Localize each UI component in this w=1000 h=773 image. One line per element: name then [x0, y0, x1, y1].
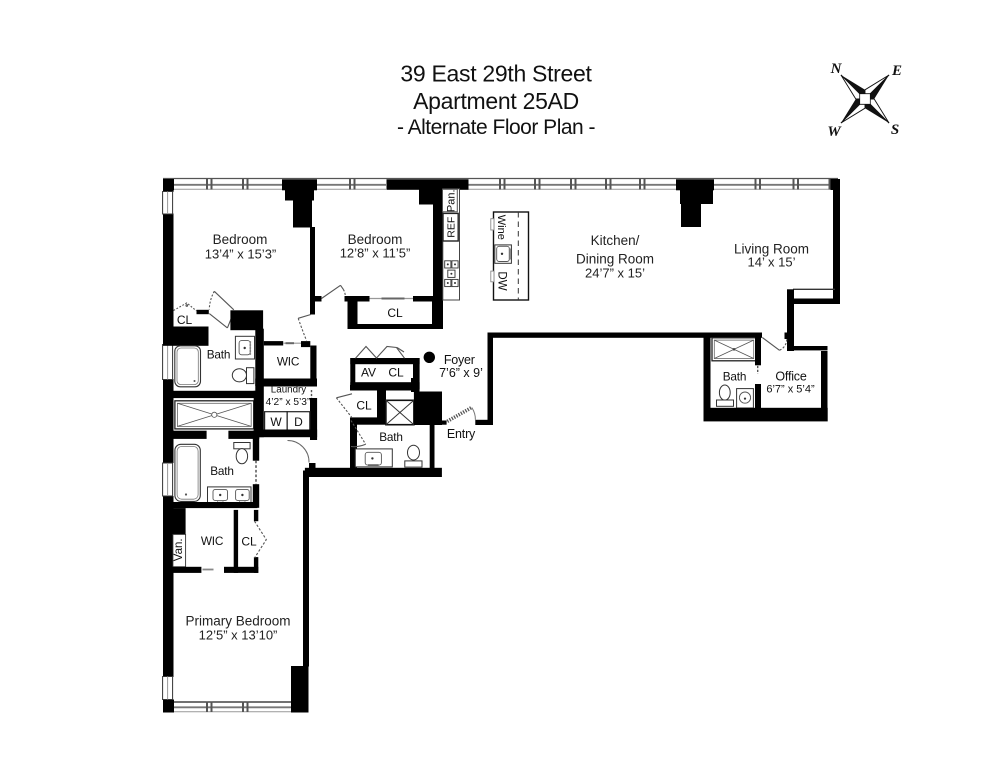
svg-text:13’4” x 15’3”: 13’4” x 15’3” [205, 247, 277, 262]
svg-text:E: E [891, 63, 902, 79]
svg-text:REF: REF [446, 217, 458, 238]
svg-text:Apartment 25AD: Apartment 25AD [413, 88, 579, 114]
svg-text:CL: CL [356, 399, 372, 413]
svg-text:6’7” x 5’4”: 6’7” x 5’4” [766, 384, 815, 396]
svg-text:Dining Room: Dining Room [576, 252, 654, 267]
svg-text:CL: CL [241, 535, 257, 549]
svg-text:12’5” x 13’10”: 12’5” x 13’10” [199, 628, 278, 643]
svg-text:Primary Bedroom: Primary Bedroom [185, 614, 290, 629]
svg-text:Bath: Bath [207, 348, 230, 362]
svg-text:W: W [827, 124, 842, 140]
svg-text:Entry: Entry [447, 427, 476, 441]
svg-text:Wine: Wine [495, 215, 507, 240]
svg-text:4’2” x 5’3”: 4’2” x 5’3” [266, 397, 311, 408]
svg-text:12’8” x 11’5”: 12’8” x 11’5” [340, 246, 411, 261]
svg-text:CL: CL [387, 306, 403, 320]
svg-text:AV: AV [361, 366, 376, 380]
svg-text:Laundry: Laundry [271, 384, 307, 395]
svg-text:- Alternate Floor Plan -: - Alternate Floor Plan - [397, 116, 596, 139]
svg-text:Kitchen/: Kitchen/ [591, 233, 640, 248]
svg-text:DW: DW [495, 271, 507, 290]
svg-text:CL: CL [177, 313, 193, 327]
svg-text:14’ x 15’: 14’ x 15’ [748, 255, 796, 270]
svg-text:Bedroom: Bedroom [213, 232, 268, 247]
svg-text:S: S [891, 122, 899, 138]
svg-text:7’6” x 9’: 7’6” x 9’ [439, 366, 483, 380]
svg-text:CL: CL [388, 366, 404, 380]
svg-text:Bath: Bath [723, 369, 746, 383]
svg-text:Bath: Bath [379, 430, 402, 444]
svg-text:WIC: WIC [277, 355, 300, 369]
svg-text:Pan.: Pan. [445, 189, 457, 212]
svg-text:D: D [294, 415, 303, 429]
svg-text:Van.: Van. [173, 538, 185, 561]
svg-text:W: W [270, 415, 282, 429]
svg-text:24’7” x 15’: 24’7” x 15’ [585, 266, 645, 281]
svg-text:Bath: Bath [210, 464, 233, 478]
svg-text:N: N [830, 61, 843, 77]
svg-text:Office: Office [775, 369, 806, 383]
svg-text:WIC: WIC [201, 534, 224, 548]
svg-text:39 East 29th Street: 39 East 29th Street [400, 60, 592, 86]
